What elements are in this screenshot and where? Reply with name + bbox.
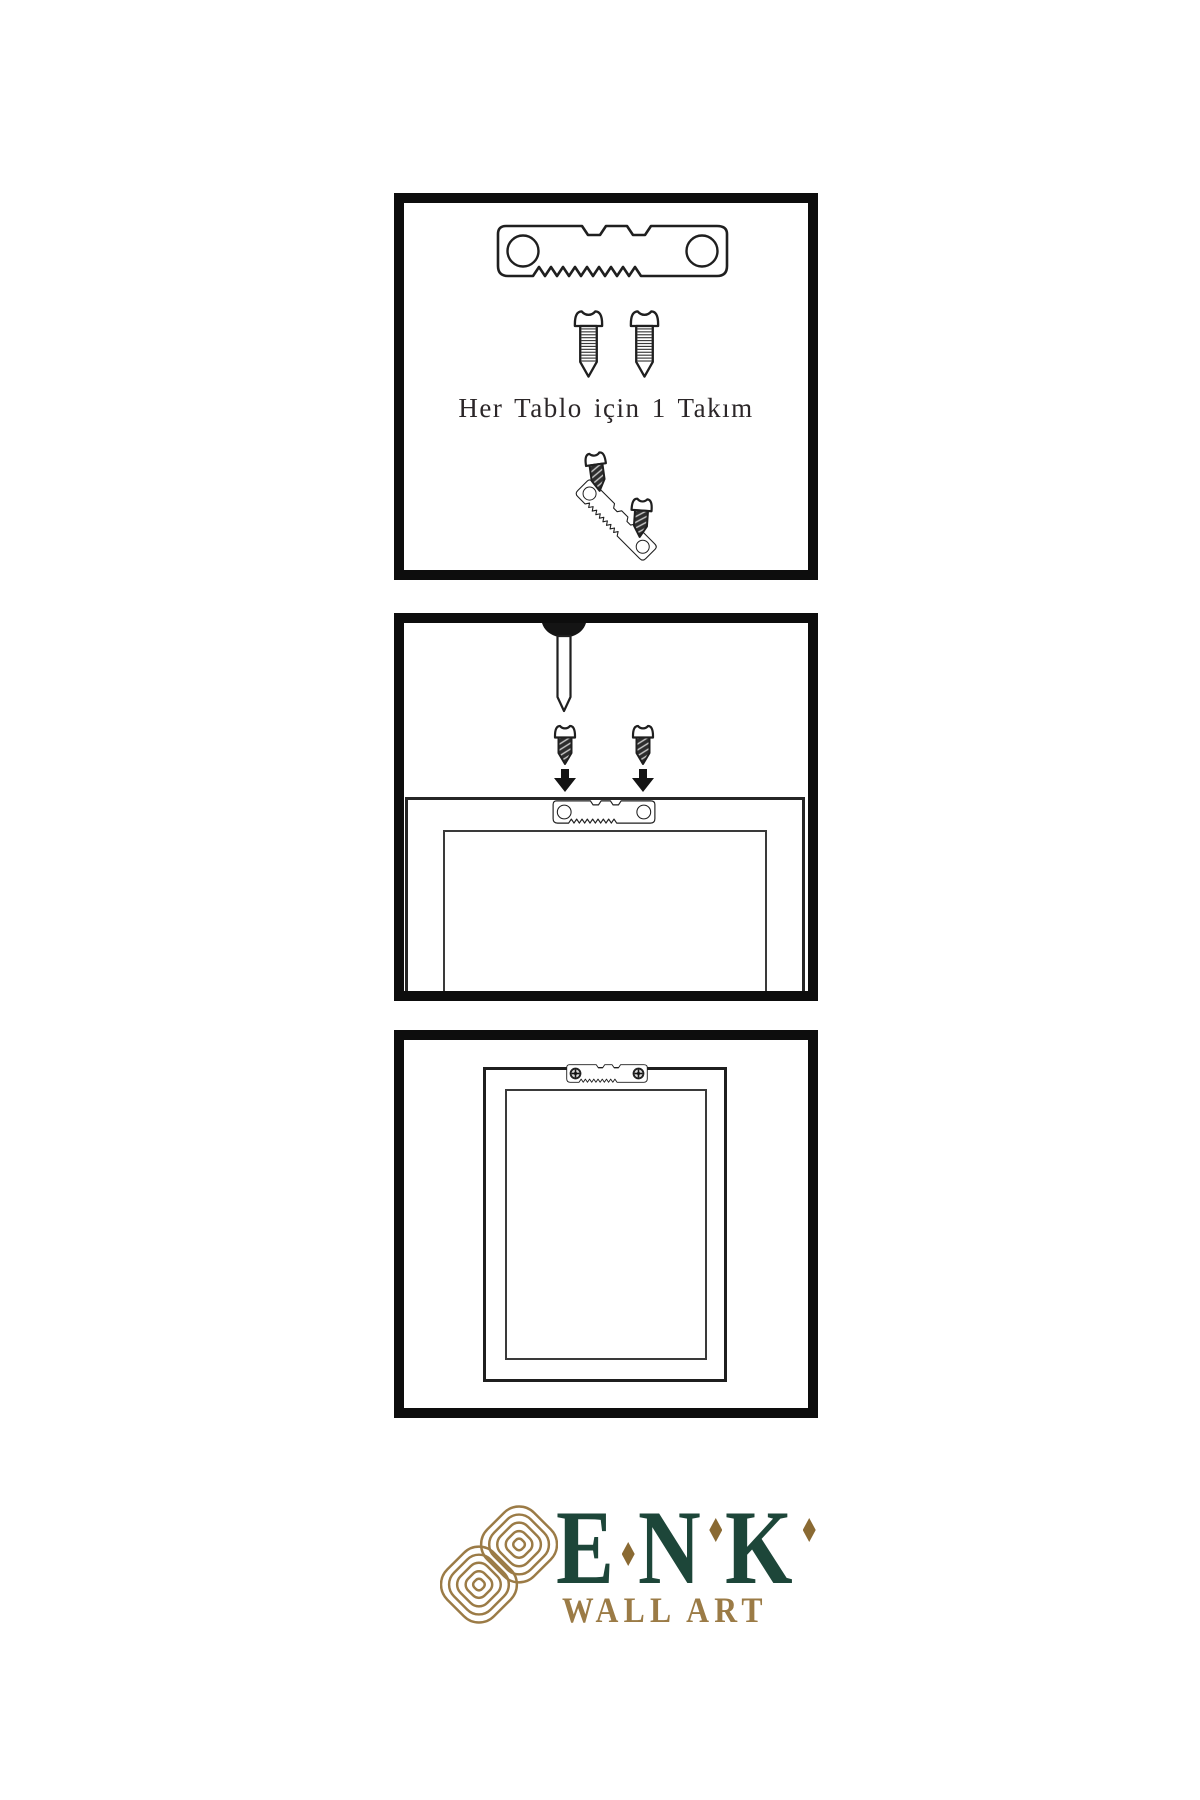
diamond-accent-icon bbox=[709, 1518, 722, 1542]
sawtooth-hanger-icon bbox=[552, 800, 656, 824]
screw-dark-icon bbox=[552, 724, 578, 766]
diamond-accent-icon bbox=[622, 1542, 635, 1566]
brand-tagline: WALL ART bbox=[562, 1592, 768, 1628]
step-panel-2-mount-hanger bbox=[394, 613, 818, 1001]
frame-inner-edge bbox=[505, 1089, 707, 1360]
brand-letter-e: E bbox=[556, 1495, 614, 1601]
arrow-down-icon bbox=[553, 769, 577, 792]
wall-art-mounting-infographic: Her Tablo için 1 Takım bbox=[0, 0, 1200, 1800]
screw-icon bbox=[571, 308, 606, 380]
sawtooth-hanger-icon bbox=[496, 224, 729, 278]
brand-letter-k: K bbox=[725, 1495, 793, 1601]
step-panel-1-hardware-kit: Her Tablo için 1 Takım bbox=[394, 193, 818, 580]
brand-wordmark: E N K bbox=[556, 1495, 819, 1601]
screw-dark-icon bbox=[630, 724, 656, 766]
diamond-accent-icon bbox=[803, 1518, 816, 1542]
frame-back-inner-edge bbox=[443, 830, 767, 991]
screw-icon bbox=[627, 308, 662, 380]
brand-letter-n: N bbox=[638, 1495, 701, 1601]
arrow-down-icon bbox=[631, 769, 655, 792]
sawtooth-hanger-screwed-icon bbox=[566, 1064, 648, 1083]
kit-caption: Her Tablo için 1 Takım bbox=[404, 393, 808, 424]
screw-into-hanger-icon bbox=[554, 445, 664, 563]
nail-icon bbox=[542, 623, 586, 713]
step-panel-3-hang-frame bbox=[394, 1030, 818, 1418]
knot-logo-icon bbox=[440, 1502, 558, 1627]
